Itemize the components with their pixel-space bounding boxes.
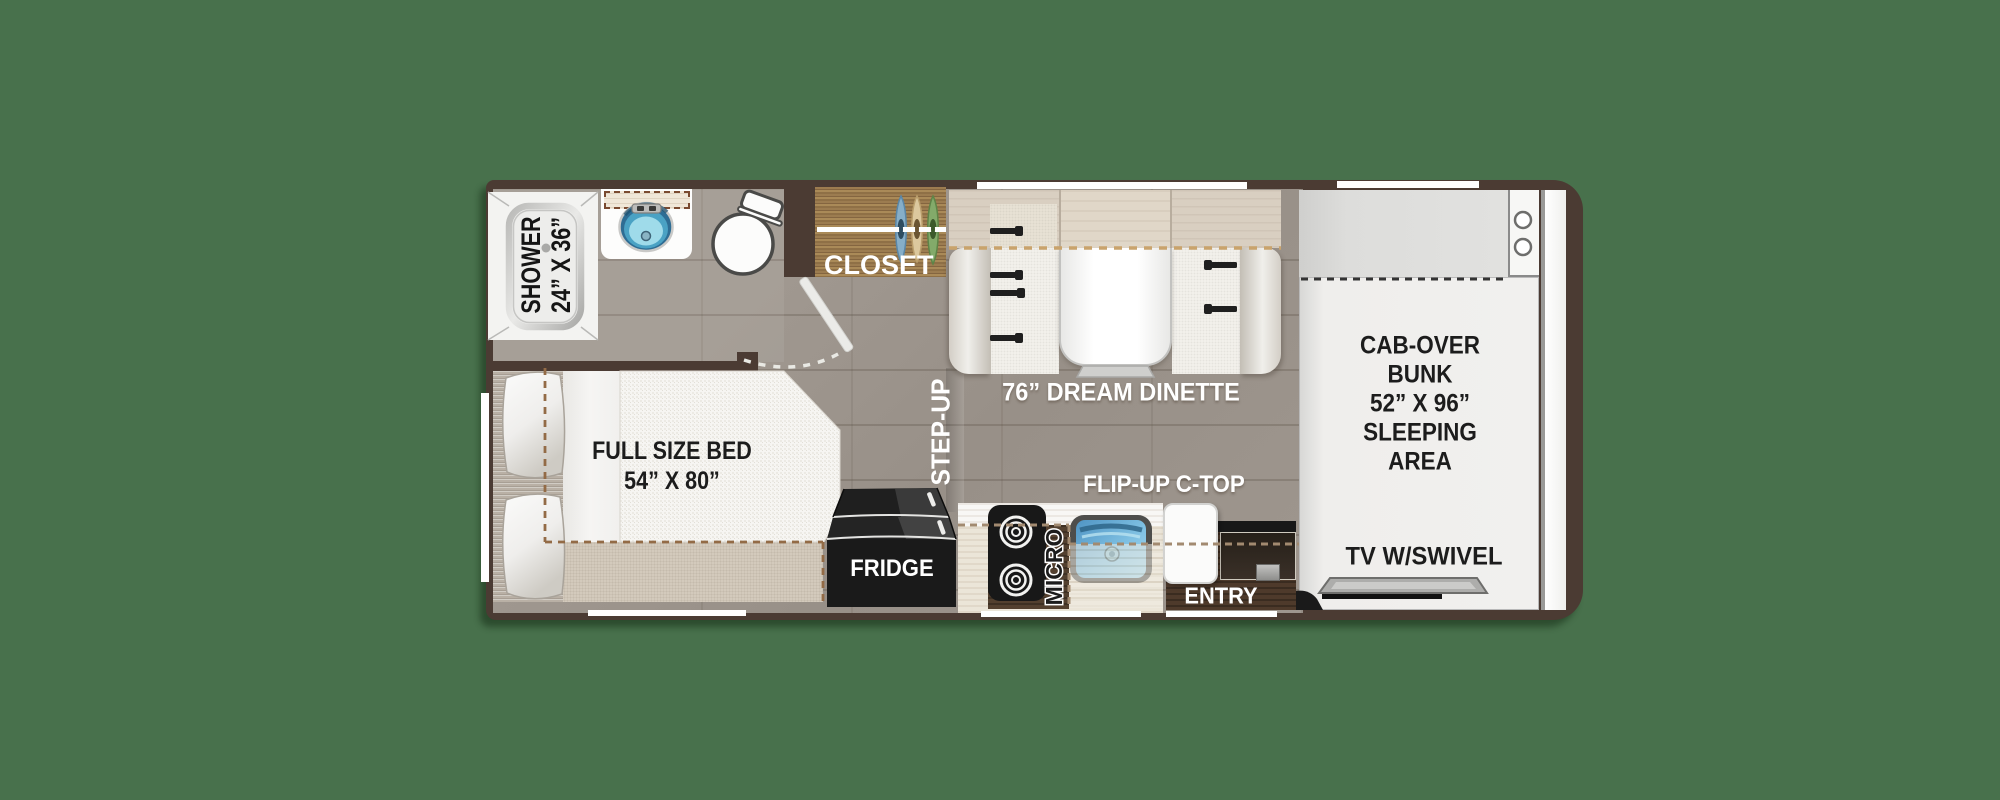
svg-text:MICRO: MICRO <box>1041 529 1067 606</box>
